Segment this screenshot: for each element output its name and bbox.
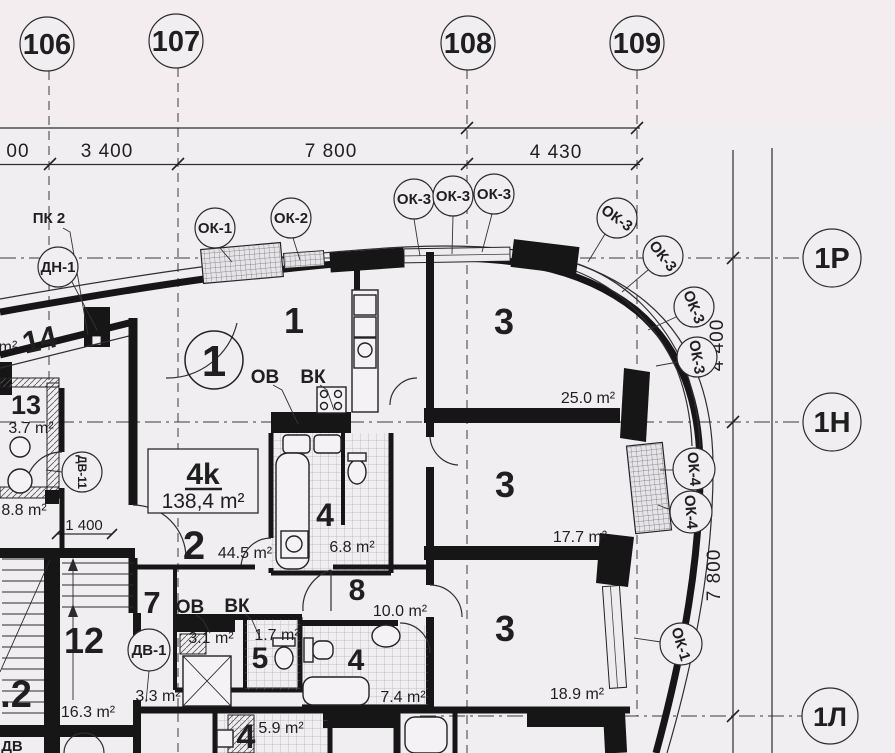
room-1-circled: 1 (202, 337, 226, 386)
room-13: 13 (11, 390, 41, 420)
callout-dn1: ДН-1 (41, 259, 76, 276)
apartment-type: 4k (186, 458, 220, 491)
room-3-top: 3 (494, 301, 514, 342)
room-12: 12 (64, 620, 104, 661)
callout-ok1-top: ОК-1 (198, 220, 232, 237)
callout-pk2: ПК 2 (33, 210, 65, 227)
callout-ok3-2: ОК-3 (436, 188, 470, 205)
area-3-3: 3.3 m² (135, 688, 181, 705)
area-12: 16.3 m² (61, 704, 116, 721)
callout-ok2: ОК-2 (274, 210, 308, 227)
axis-109: 109 (613, 28, 661, 60)
dim-left-cut: 00 (6, 141, 29, 162)
area-3-bottom: 18.9 m² (550, 686, 605, 703)
room-4-lower: 4 (348, 644, 365, 677)
window-ok2 (284, 251, 325, 269)
apartment-area: 138,4 m² (162, 490, 245, 513)
floor-plan-drawing: 4k 138,4 m² 00 3 400 7 800 4 430 4 400 7… (0, 0, 895, 753)
area-3-mid: 17.7 m² (553, 529, 608, 546)
window-ok1 (201, 243, 284, 284)
room-3-bottom: 3 (495, 608, 515, 649)
callout-dv11: ДВ-11 (75, 455, 89, 489)
area-3-top: 25.0 m² (561, 390, 616, 407)
room-4-upper: 4 (316, 497, 334, 533)
callout-ok3-3: ОК-3 (477, 186, 511, 203)
room-4-bottom: 4 (237, 718, 256, 753)
dim-3400: 3 400 (81, 141, 134, 162)
riser-ov-lower: ОВ (176, 597, 205, 618)
callout-dv-cut: ДВ (1, 738, 23, 753)
axis-1n: 1Н (813, 407, 850, 439)
callout-ok4-1: ОК-4 (684, 451, 704, 487)
room-2: 2 (183, 524, 205, 568)
callout-ok3-1: ОК-3 (397, 191, 431, 208)
dim-7800-right: 7 800 (704, 549, 725, 602)
paper-tint (0, 0, 895, 125)
apartment-info-box: 4k 138,4 m² (148, 449, 258, 513)
area-8-8: 8.8 m² (1, 502, 47, 519)
room-3-mid: 3 (495, 464, 515, 505)
area-4-upper: 6.8 m² (329, 539, 375, 556)
axis-1l: 1Л (813, 702, 847, 732)
area-5: 1.7 m² (254, 627, 300, 644)
room-8: 8 (349, 574, 366, 607)
floor-plan-sheet: 4k 138,4 m² 00 3 400 7 800 4 430 4 400 7… (0, 0, 895, 753)
room-2-cut: .2 (0, 674, 32, 716)
area-cut-m2: m² (0, 339, 18, 356)
area-utility: 3.1 m² (188, 630, 234, 647)
dim-4430: 4 430 (530, 142, 583, 163)
riser-ov-upper: ОВ (251, 367, 280, 388)
callout-ok4-2: ОК-4 (681, 494, 701, 530)
riser-vk-lower: ВК (224, 596, 250, 617)
area-13: 3.7 m² (8, 420, 54, 437)
area-4-bottom: 5.9 m² (258, 720, 304, 737)
room-1-plain: 1 (284, 300, 304, 341)
area-4-lower: 7.4 m² (380, 689, 426, 706)
axis-108: 108 (444, 28, 492, 60)
dim-1400: 1 400 (65, 517, 103, 534)
axis-1r: 1Р (814, 243, 849, 275)
dim-7800-top: 7 800 (305, 141, 358, 162)
room-7: 7 (143, 585, 160, 620)
room-5: 5 (252, 642, 269, 675)
riser-vk-upper: ВК (300, 367, 326, 388)
area-2: 44.5 m² (218, 545, 273, 562)
axis-106: 106 (23, 29, 71, 61)
axis-107: 107 (152, 26, 200, 58)
callout-dv1: ДВ-1 (132, 642, 167, 659)
area-8: 10.0 m² (373, 603, 428, 620)
